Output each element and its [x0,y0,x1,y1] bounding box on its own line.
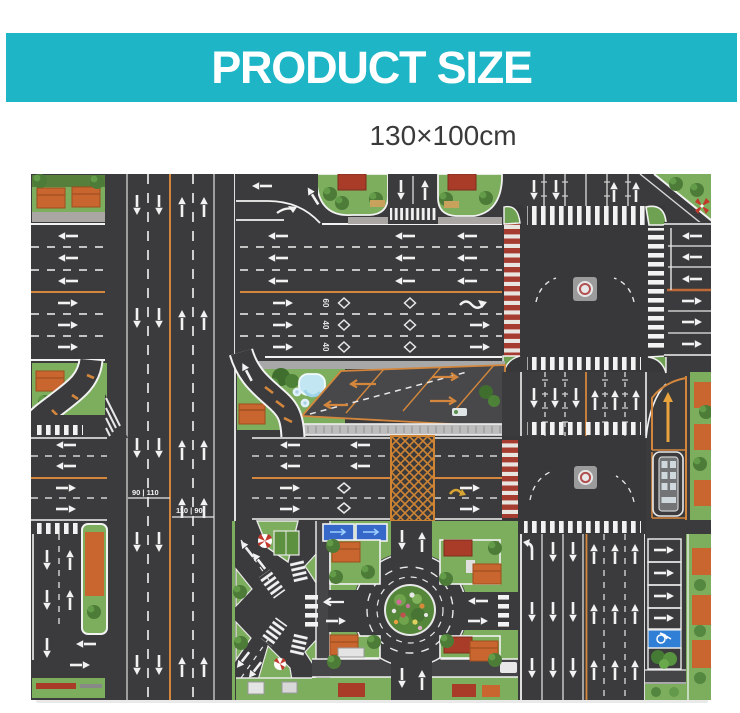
svg-text:40: 40 [321,343,330,352]
svg-text:90 | 110: 90 | 110 [132,488,159,497]
svg-text:110 | 90: 110 | 90 [176,506,203,515]
svg-text:60: 60 [321,299,330,308]
svg-text:40: 40 [321,321,330,330]
